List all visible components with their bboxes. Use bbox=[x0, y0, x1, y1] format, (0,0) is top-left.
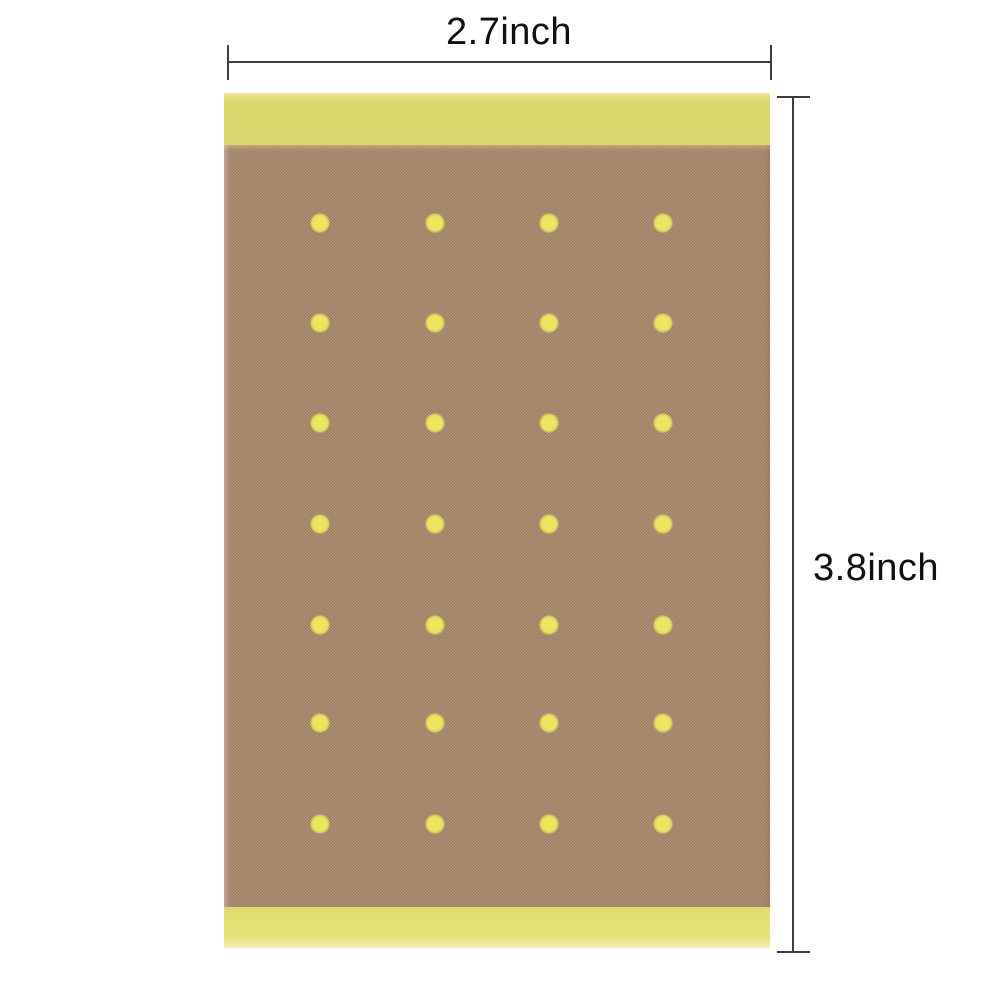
patch-hole bbox=[539, 615, 559, 635]
height-dimension-label: 3.8inch bbox=[813, 549, 939, 587]
patch-hole bbox=[653, 814, 673, 834]
patch-hole bbox=[425, 514, 445, 534]
patch-hole bbox=[425, 713, 445, 733]
patch-hole bbox=[425, 313, 445, 333]
plaster-patch bbox=[224, 93, 770, 948]
patch-hole bbox=[539, 213, 559, 233]
patch-hole bbox=[425, 413, 445, 433]
patch-hole bbox=[425, 814, 445, 834]
patch-hole bbox=[310, 313, 330, 333]
height-dimension-tick-bottom bbox=[777, 951, 810, 953]
product-image-canvas: 2.7inch 3.8inch bbox=[0, 0, 1002, 1002]
patch-hole bbox=[310, 814, 330, 834]
patch-hole bbox=[425, 615, 445, 635]
width-dimension-line bbox=[228, 61, 772, 63]
patch-hole bbox=[539, 413, 559, 433]
patch-bottom-adhesive-band bbox=[224, 907, 770, 948]
height-dimension-tick-top bbox=[777, 96, 810, 98]
patch-hole bbox=[653, 615, 673, 635]
patch-hole bbox=[310, 514, 330, 534]
patch-hole bbox=[310, 713, 330, 733]
patch-hole bbox=[539, 713, 559, 733]
patch-hole bbox=[653, 213, 673, 233]
width-dimension-tick-right bbox=[770, 45, 772, 80]
patch-fabric-area bbox=[224, 145, 770, 907]
width-dimension-tick-left bbox=[227, 45, 229, 80]
patch-top-adhesive-band bbox=[224, 93, 770, 145]
patch-hole bbox=[539, 814, 559, 834]
patch-hole bbox=[539, 514, 559, 534]
patch-hole bbox=[653, 413, 673, 433]
patch-hole bbox=[653, 313, 673, 333]
patch-hole bbox=[310, 615, 330, 635]
patch-hole bbox=[425, 213, 445, 233]
patch-hole bbox=[539, 313, 559, 333]
height-dimension-line bbox=[792, 97, 794, 953]
patch-hole bbox=[310, 413, 330, 433]
patch-hole bbox=[653, 713, 673, 733]
patch-hole bbox=[653, 514, 673, 534]
width-dimension-label: 2.7inch bbox=[446, 13, 556, 51]
patch-hole bbox=[310, 213, 330, 233]
